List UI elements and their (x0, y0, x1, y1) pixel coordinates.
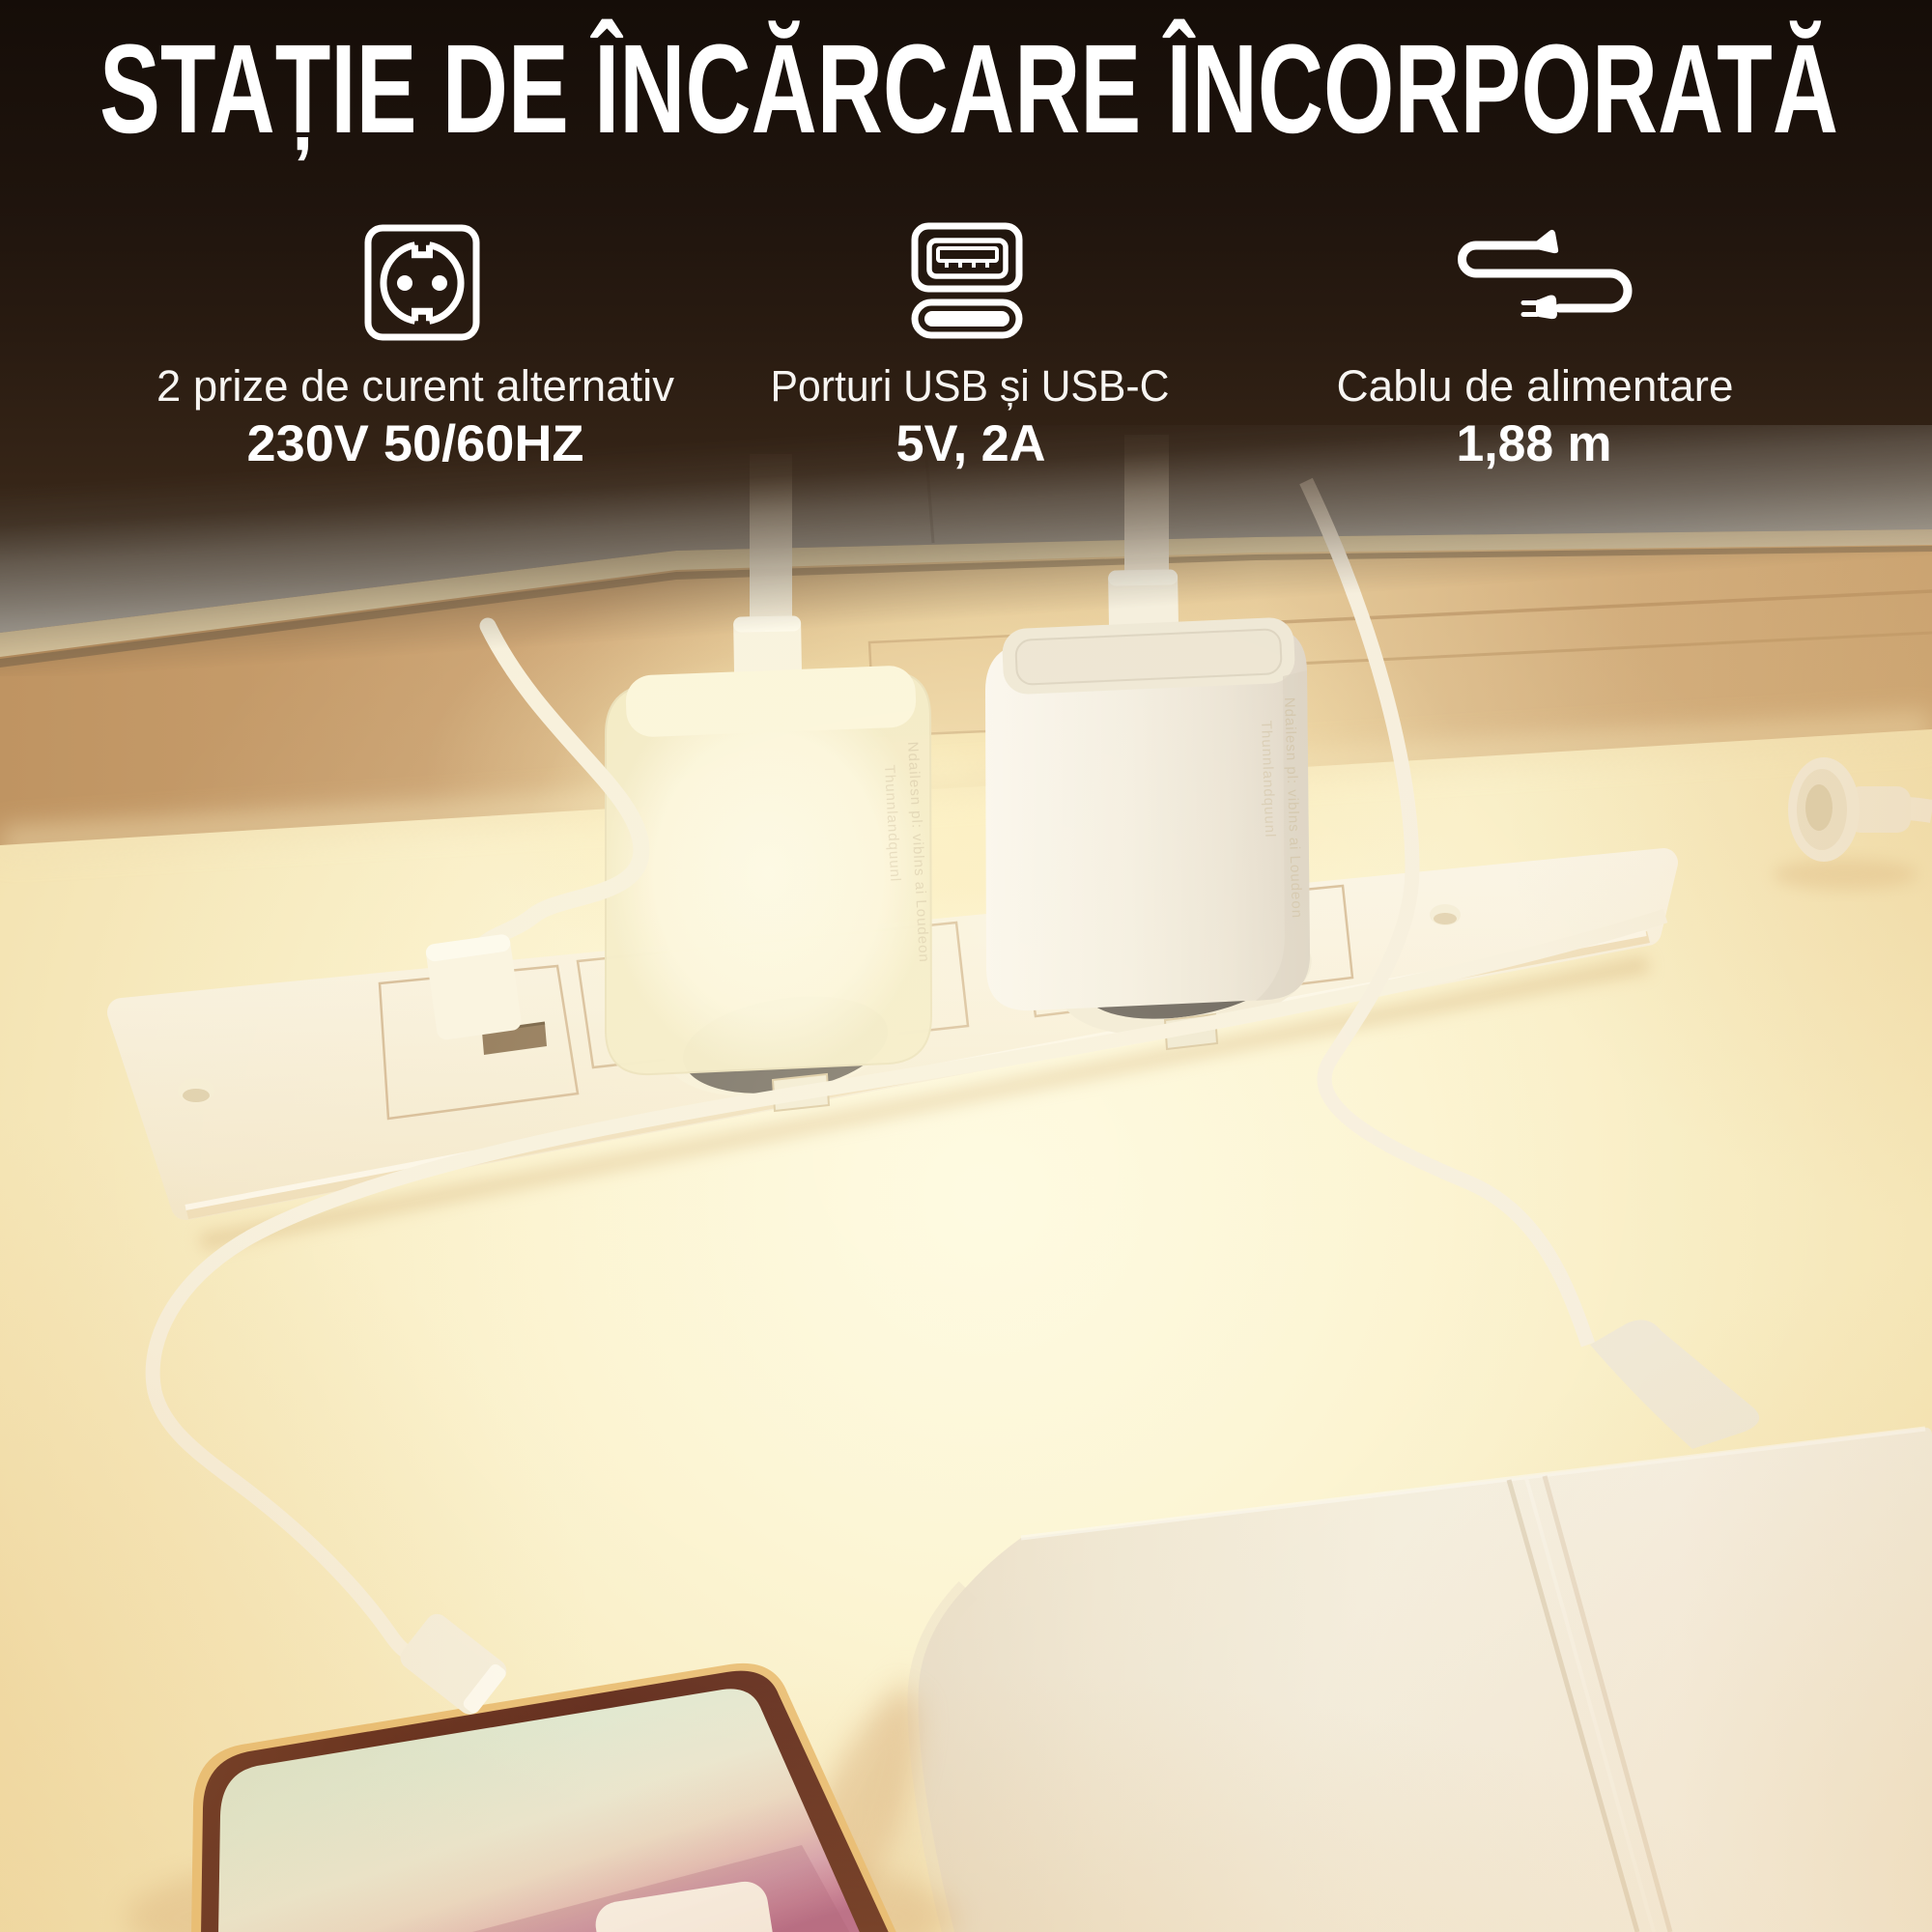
svg-text:230V 50/60HZ: 230V 50/60HZ (247, 415, 584, 472)
svg-text:Cablu de alimentare: Cablu de alimentare (1337, 361, 1734, 411)
svg-text:STAȚIE DE ÎNCĂRCARE ÎNCORPORAT: STAȚIE DE ÎNCĂRCARE ÎNCORPORATĂ (99, 17, 1838, 160)
svg-text:1,88 m: 1,88 m (1457, 415, 1612, 472)
svg-text:Porturi USB și USB-C: Porturi USB și USB-C (771, 361, 1170, 411)
svg-text:5V, 2A: 5V, 2A (896, 415, 1046, 472)
svg-text:2 prize de curent alternativ: 2 prize de curent alternativ (156, 361, 674, 411)
